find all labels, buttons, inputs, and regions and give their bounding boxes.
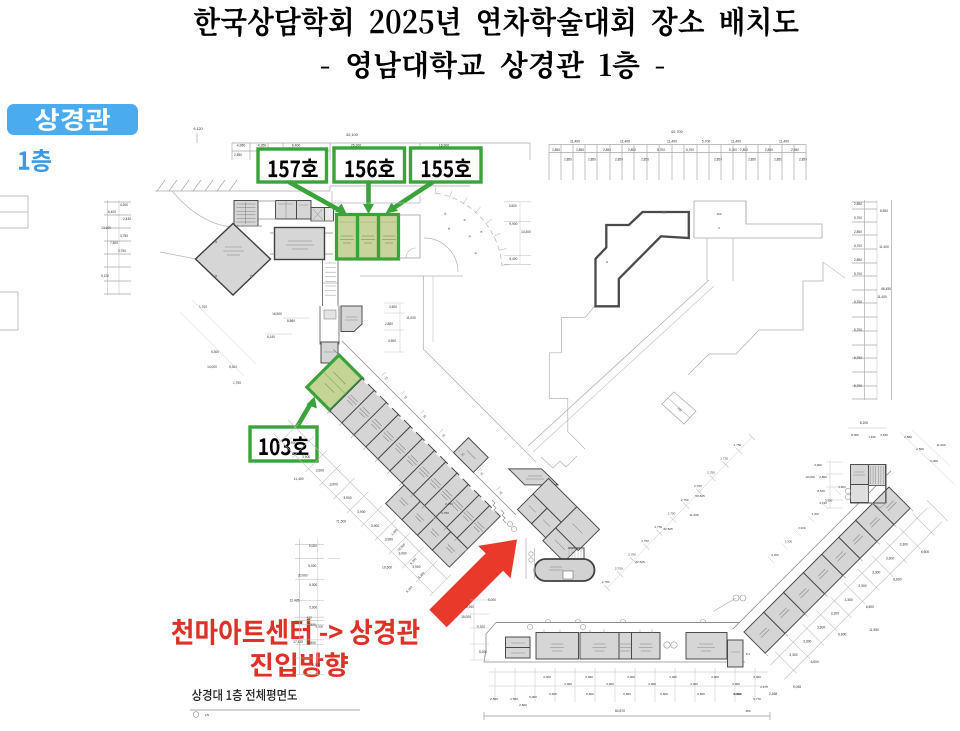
- svg-text:8,200: 8,200: [860, 421, 868, 425]
- svg-text:2,500: 2,500: [490, 697, 498, 701]
- svg-text:2,850: 2,850: [588, 158, 596, 162]
- svg-text:3,300: 3,300: [838, 485, 846, 489]
- svg-text:20,000: 20,000: [298, 574, 308, 578]
- svg-text:8,500: 8,500: [312, 663, 320, 667]
- svg-text:11,400: 11,400: [294, 477, 304, 481]
- svg-text:1,750: 1,750: [233, 381, 241, 385]
- svg-text:6,600: 6,600: [586, 692, 594, 696]
- svg-text:8,000: 8,000: [851, 433, 859, 437]
- svg-text:19,500: 19,500: [382, 566, 392, 570]
- svg-text:9,045: 9,045: [793, 685, 801, 689]
- svg-text:425: 425: [307, 616, 312, 620]
- svg-text:2,750: 2,750: [668, 512, 676, 516]
- svg-text:2,750: 2,750: [602, 580, 610, 584]
- svg-text:3,500: 3,500: [389, 305, 397, 309]
- svg-text:8,400: 8,400: [292, 144, 301, 148]
- svg-text:6,600: 6,600: [697, 692, 705, 696]
- svg-text:62,100: 62,100: [346, 133, 357, 137]
- svg-text:2,750: 2,750: [734, 443, 742, 447]
- svg-text:2,850: 2,850: [628, 148, 636, 152]
- svg-text:11,000: 11,000: [406, 316, 416, 320]
- svg-text:3,300: 3,300: [753, 675, 761, 679]
- svg-text:10,000: 10,000: [805, 475, 815, 479]
- svg-text:5,700: 5,700: [854, 356, 862, 360]
- svg-text:11,400: 11,400: [620, 140, 630, 144]
- svg-text:11,400: 11,400: [570, 140, 580, 144]
- svg-text:2,800: 2,800: [385, 322, 393, 326]
- svg-text:3,300: 3,300: [872, 570, 880, 574]
- svg-text:3,300: 3,300: [669, 675, 677, 679]
- svg-text:32,525: 32,525: [663, 527, 673, 531]
- svg-text:14,000: 14,000: [207, 365, 217, 369]
- svg-text:6,600: 6,600: [623, 692, 631, 696]
- svg-text:3,530: 3,530: [880, 433, 888, 437]
- svg-text:25: 25: [422, 414, 427, 419]
- svg-text:2,430: 2,430: [123, 217, 131, 221]
- svg-text:3,300: 3,300: [771, 553, 779, 557]
- svg-text:5,400: 5,400: [509, 257, 517, 261]
- svg-text:2,750: 2,750: [641, 539, 649, 543]
- svg-text:25: 25: [441, 433, 446, 438]
- svg-text:4,300: 4,300: [417, 571, 426, 580]
- svg-text:2,500: 2,500: [510, 697, 518, 701]
- svg-text:5,000: 5,000: [308, 564, 316, 568]
- svg-text:2,750: 2,750: [445, 502, 453, 506]
- svg-text:25: 25: [384, 376, 389, 381]
- svg-text:5,700: 5,700: [686, 148, 694, 152]
- svg-text:5,700: 5,700: [854, 300, 862, 304]
- svg-text:6,600: 6,600: [866, 605, 874, 609]
- svg-text:31,425: 31,425: [290, 599, 300, 603]
- svg-text:9,120: 9,120: [193, 127, 202, 131]
- svg-text:3,900: 3,900: [316, 469, 324, 473]
- svg-text:2,458: 2,458: [769, 692, 777, 696]
- svg-text:1/5: 1/5: [205, 713, 210, 717]
- svg-text:8,540: 8,540: [817, 489, 825, 493]
- svg-text:15,000: 15,000: [461, 615, 471, 619]
- svg-text:8,860: 8,860: [287, 319, 295, 323]
- svg-text:4,200: 4,200: [120, 203, 128, 207]
- svg-text:2,750: 2,750: [628, 553, 636, 557]
- svg-text:14,100: 14,100: [101, 226, 111, 230]
- svg-text:3,900: 3,900: [343, 496, 351, 500]
- svg-text:5,300: 5,300: [229, 365, 237, 369]
- svg-text:5,940: 5,940: [466, 605, 474, 609]
- svg-text:11,400: 11,400: [877, 295, 887, 299]
- svg-text:16,500: 16,500: [272, 312, 282, 316]
- svg-text:3,900: 3,900: [302, 455, 310, 459]
- svg-text:6,600: 6,600: [893, 577, 901, 581]
- svg-text:5,700: 5,700: [854, 328, 862, 332]
- svg-text:2,550: 2,550: [234, 153, 242, 157]
- svg-text:11,400: 11,400: [731, 140, 741, 144]
- svg-text:25: 25: [479, 471, 484, 476]
- svg-text:3,300: 3,300: [900, 543, 908, 547]
- svg-text:5,700: 5,700: [409, 557, 418, 566]
- svg-text:11,000: 11,000: [689, 513, 699, 517]
- svg-text:5,700: 5,700: [657, 148, 665, 152]
- svg-text:6,140: 6,140: [267, 335, 275, 339]
- svg-text:6,600: 6,600: [838, 633, 846, 637]
- svg-text:5,700: 5,700: [854, 244, 862, 248]
- svg-text:2,750: 2,750: [707, 470, 715, 474]
- svg-text:3,300: 3,300: [648, 682, 656, 686]
- svg-text:11,000: 11,000: [936, 443, 946, 447]
- svg-text:5,200: 5,200: [479, 650, 487, 654]
- svg-text:2,850: 2,850: [765, 148, 773, 152]
- svg-text:1,495: 1,495: [868, 435, 876, 439]
- svg-text:8,550: 8,550: [880, 209, 888, 213]
- svg-text:5,770: 5,770: [753, 697, 761, 701]
- svg-text:3,900: 3,900: [385, 538, 393, 542]
- svg-text:4,950: 4,950: [237, 144, 246, 148]
- svg-text:11,950: 11,950: [869, 628, 879, 632]
- svg-text:2,850: 2,850: [641, 158, 649, 162]
- svg-text:103: 103: [716, 212, 721, 216]
- svg-text:8,300: 8,300: [316, 625, 324, 629]
- svg-text:71,500: 71,500: [336, 520, 346, 524]
- svg-text:2,850: 2,850: [748, 158, 756, 162]
- svg-text:2,500: 2,500: [308, 641, 316, 645]
- svg-text:3,300: 3,300: [886, 557, 894, 561]
- svg-text:3,500: 3,500: [509, 204, 517, 208]
- svg-text:3,900: 3,900: [288, 441, 296, 445]
- svg-text:5,300: 5,300: [211, 350, 219, 354]
- svg-text:9,120: 9,120: [101, 274, 109, 278]
- svg-text:480: 480: [745, 709, 750, 713]
- svg-text:6,600: 6,600: [811, 660, 819, 664]
- svg-text:3,750: 3,750: [120, 234, 128, 238]
- svg-text:2,850: 2,850: [564, 158, 572, 162]
- svg-text:2,750: 2,750: [615, 566, 623, 570]
- svg-text:22,525: 22,525: [635, 560, 645, 564]
- svg-text:2,850: 2,850: [774, 158, 782, 162]
- svg-text:5,700: 5,700: [702, 140, 711, 144]
- svg-text:5,000: 5,000: [309, 606, 317, 610]
- svg-text:3,300: 3,300: [711, 675, 719, 679]
- svg-text:5,700: 5,700: [854, 384, 862, 388]
- svg-text:25: 25: [498, 490, 503, 495]
- svg-text:3,300: 3,300: [543, 675, 551, 679]
- svg-text:62,700: 62,700: [671, 130, 682, 134]
- svg-text:5,000: 5,000: [529, 695, 537, 699]
- svg-text:2,750: 2,750: [681, 498, 689, 502]
- svg-text:3,300: 3,300: [858, 584, 866, 588]
- svg-text:5,300: 5,300: [477, 625, 485, 629]
- svg-text:2,850: 2,850: [576, 148, 584, 152]
- svg-text:3,300: 3,300: [564, 682, 572, 686]
- svg-text:5,700: 5,700: [854, 216, 862, 220]
- svg-text:2,890: 2,890: [819, 475, 827, 479]
- svg-text:3,900: 3,900: [330, 482, 338, 486]
- svg-text:2,750: 2,750: [720, 457, 728, 461]
- svg-text:2,500: 2,500: [519, 703, 527, 707]
- svg-text:3,300: 3,300: [627, 675, 635, 679]
- svg-text:2,750: 2,750: [441, 511, 449, 515]
- svg-text:11,400: 11,400: [779, 140, 789, 144]
- svg-text:3,300: 3,300: [690, 682, 698, 686]
- svg-text:11,400: 11,400: [879, 245, 889, 249]
- svg-text:3,000: 3,000: [814, 463, 822, 467]
- svg-text:2,750: 2,750: [654, 525, 662, 529]
- svg-text:3,300: 3,300: [732, 682, 740, 686]
- svg-text:3,900: 3,900: [357, 510, 365, 514]
- svg-text:2,850: 2,850: [854, 230, 862, 234]
- svg-text:3,300: 3,300: [811, 512, 819, 516]
- svg-text:4,900: 4,900: [388, 339, 396, 343]
- svg-text:3,300: 3,300: [606, 682, 614, 686]
- svg-text:4,950: 4,950: [258, 144, 267, 148]
- svg-text:3,300: 3,300: [789, 653, 797, 657]
- svg-text:6,600: 6,600: [921, 550, 929, 554]
- svg-text:2,850: 2,850: [791, 148, 799, 152]
- svg-text:11,400: 11,400: [667, 140, 677, 144]
- svg-text:3,300: 3,300: [803, 639, 811, 643]
- svg-text:5,000: 5,000: [309, 544, 317, 548]
- svg-text:3,750: 3,750: [118, 249, 126, 253]
- svg-text:7,500: 7,500: [110, 241, 118, 245]
- svg-text:2,750: 2,750: [694, 484, 702, 488]
- svg-text:8,300: 8,300: [733, 692, 741, 696]
- svg-text:6,600: 6,600: [549, 692, 557, 696]
- svg-text:3,300: 3,300: [817, 625, 825, 629]
- svg-text:25: 25: [403, 395, 408, 400]
- svg-text:2,850: 2,850: [552, 148, 560, 152]
- svg-text:P.1: P.1: [746, 652, 750, 656]
- svg-text:48,450: 48,450: [881, 287, 891, 291]
- svg-text:9,900: 9,900: [509, 222, 517, 226]
- svg-text:17,425: 17,425: [293, 640, 303, 644]
- svg-text:3,300: 3,300: [831, 612, 839, 616]
- svg-text:50,525: 50,525: [695, 494, 705, 498]
- svg-text:3,900: 3,900: [399, 551, 407, 555]
- svg-text:5,000: 5,000: [309, 583, 317, 587]
- svg-text:2,850: 2,850: [854, 202, 862, 206]
- svg-text:5,700: 5,700: [854, 272, 862, 276]
- svg-text:2,850: 2,850: [740, 148, 748, 152]
- svg-text:3,900: 3,900: [371, 524, 379, 528]
- svg-text:2,475: 2,475: [760, 685, 768, 689]
- svg-text:3,900: 3,900: [412, 565, 420, 569]
- svg-text:6,600: 6,600: [660, 692, 668, 696]
- svg-text:3,300: 3,300: [585, 675, 593, 679]
- svg-text:14,300: 14,300: [521, 230, 531, 234]
- svg-text:6,400: 6,400: [108, 210, 116, 214]
- svg-text:5,000: 5,000: [488, 598, 496, 602]
- svg-text:3,300: 3,300: [845, 598, 853, 602]
- svg-text:3,300: 3,300: [825, 499, 833, 503]
- svg-text:64,870: 64,870: [615, 709, 625, 713]
- svg-text:2,850: 2,850: [854, 258, 862, 262]
- svg-text:3,300: 3,300: [785, 539, 793, 543]
- svg-text:5,150: 5,150: [405, 585, 414, 594]
- svg-text:3,300: 3,300: [798, 526, 806, 530]
